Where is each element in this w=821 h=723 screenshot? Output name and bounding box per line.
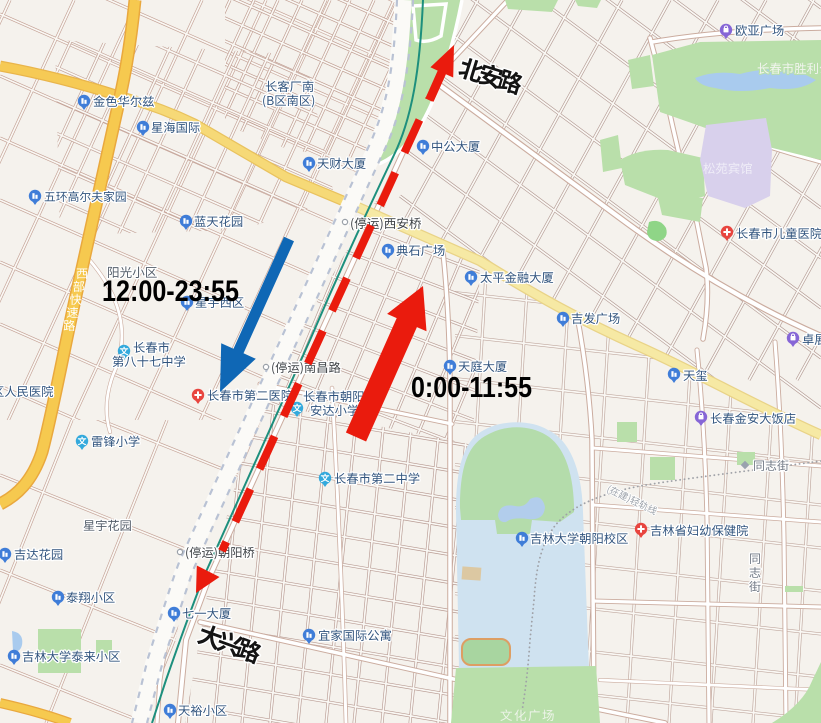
svg-text:0:00-11:55: 0:00-11:55 — [411, 372, 532, 404]
svg-text:12:00-23:55: 12:00-23:55 — [102, 275, 239, 308]
